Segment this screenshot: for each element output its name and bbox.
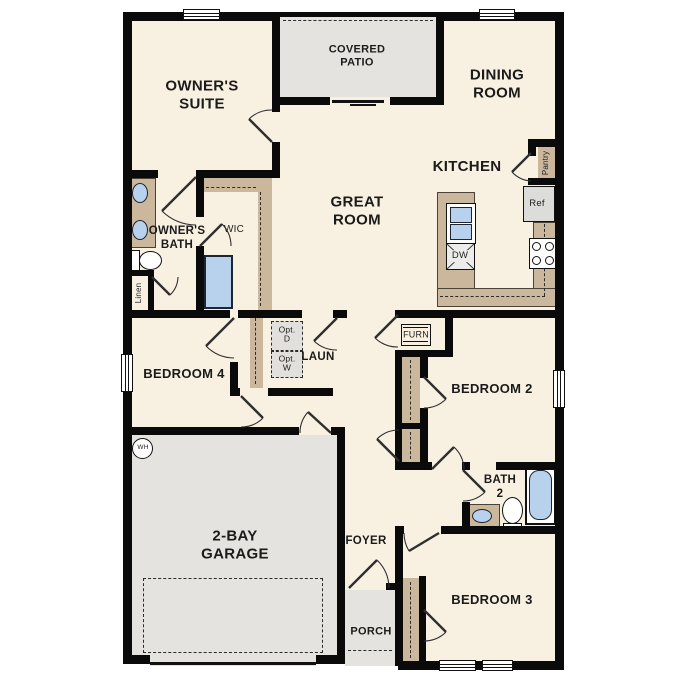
foyer-label: FOYER	[345, 534, 386, 548]
wall	[333, 310, 347, 318]
owners-bath-label: OWNER'SBATH	[149, 224, 206, 252]
bedroom4-label: BEDROOM 4	[143, 366, 224, 382]
garage-door-threshold	[150, 662, 316, 665]
wall	[196, 170, 280, 178]
wall	[238, 310, 302, 318]
bedroom2-closet-rod	[410, 360, 411, 420]
furnace-line	[403, 327, 428, 328]
patio-edge-dashed-line	[283, 20, 433, 21]
wall	[230, 388, 240, 396]
window	[479, 9, 515, 20]
wall	[420, 429, 428, 462]
wic-rod-dashed-h	[206, 187, 256, 188]
furnace-line	[403, 341, 428, 342]
wall	[395, 310, 563, 318]
wall	[462, 462, 470, 470]
sliding-door	[332, 100, 384, 103]
owners-toilet-bowl	[139, 251, 162, 270]
owners-bath-sink-1	[132, 183, 148, 203]
bedroom3-label: BEDROOM 3	[451, 592, 532, 608]
opt-dryer-label: Opt.D	[279, 326, 296, 345]
window	[482, 660, 513, 671]
wall	[123, 655, 150, 664]
porch-edge-dashed-line	[348, 650, 392, 651]
wall	[496, 462, 563, 470]
shower	[204, 255, 233, 309]
wall	[230, 362, 238, 390]
wall	[395, 583, 403, 666]
dining-room-label: DININGROOM	[470, 67, 524, 104]
sliding-door-panel	[350, 104, 376, 106]
burner-icon	[532, 256, 541, 265]
pantry-label: Pantry	[541, 151, 551, 175]
bedroom2-label: BEDROOM 2	[451, 381, 532, 397]
wall	[123, 12, 132, 664]
wall	[395, 526, 404, 534]
wall	[528, 139, 536, 156]
great-room-label: GREATROOM	[331, 194, 384, 231]
garage-door-dashed-outline	[143, 578, 323, 653]
window	[121, 354, 133, 392]
wall	[420, 357, 428, 378]
bath2-label: BATH2	[484, 473, 516, 501]
burner-icon	[545, 242, 554, 251]
kitchen-label: KITCHEN	[433, 158, 502, 176]
laundry-label: LAUN	[301, 350, 334, 364]
wall	[268, 388, 333, 396]
wall	[398, 661, 564, 670]
garage-label: 2-BAYGARAGE	[201, 528, 269, 565]
wall	[528, 178, 555, 185]
wall	[555, 12, 564, 669]
opt-washer-label: Opt.W	[279, 355, 296, 374]
wall	[123, 170, 158, 178]
wall	[123, 427, 299, 435]
furnace-label: FURN	[403, 330, 429, 341]
wall	[337, 427, 345, 661]
wall	[395, 350, 453, 357]
hall-chase-wall	[250, 314, 263, 388]
dishwasher-label: DW	[451, 250, 469, 262]
wall	[148, 276, 154, 312]
burner-icon	[545, 256, 554, 265]
window	[553, 370, 565, 408]
owners-suite-label: OWNER'SSUITE	[165, 78, 238, 115]
porch-label: PORCH	[350, 625, 391, 638]
covered-patio-label: COVEREDPATIO	[329, 44, 386, 71]
wall	[436, 17, 444, 105]
wall	[441, 526, 563, 534]
bedroom3-closet-rod	[410, 582, 411, 658]
wall	[395, 462, 432, 470]
bedroom3-closet	[403, 578, 419, 662]
window	[183, 9, 220, 20]
kitchen-bottom-counter	[437, 288, 557, 307]
water-heater-label: WH	[137, 444, 148, 452]
hall-closet-rod	[410, 432, 411, 459]
linen-label: Linen	[134, 283, 144, 304]
kitchen-sink-basin-1	[450, 207, 472, 223]
burner-icon	[532, 242, 541, 251]
hall-chase-dashed	[255, 318, 256, 384]
wall	[196, 246, 204, 310]
bath2-toilet-bowl	[502, 497, 523, 524]
wall	[123, 310, 230, 318]
wall	[272, 12, 444, 17]
owners-bath-sink-2	[132, 220, 148, 240]
wall	[272, 97, 334, 105]
kitchen-sink-basin-2	[450, 224, 472, 240]
wic-label: WIC	[224, 224, 244, 236]
floorplan-canvas: OWNER'SSUITE COVEREDPATIO DININGROOM KIT…	[0, 0, 687, 687]
bedroom2-closet	[402, 357, 420, 423]
window	[439, 660, 476, 671]
wall	[395, 357, 402, 462]
counter-overhang-dashed-h	[440, 296, 545, 297]
refrigerator-label: Ref	[529, 198, 544, 210]
bath2-sink	[472, 509, 492, 523]
hall-closet	[402, 429, 420, 462]
wall	[419, 576, 426, 662]
bathtub	[529, 470, 552, 520]
wic-rod-dashed-v	[260, 192, 261, 306]
wall	[196, 178, 204, 217]
